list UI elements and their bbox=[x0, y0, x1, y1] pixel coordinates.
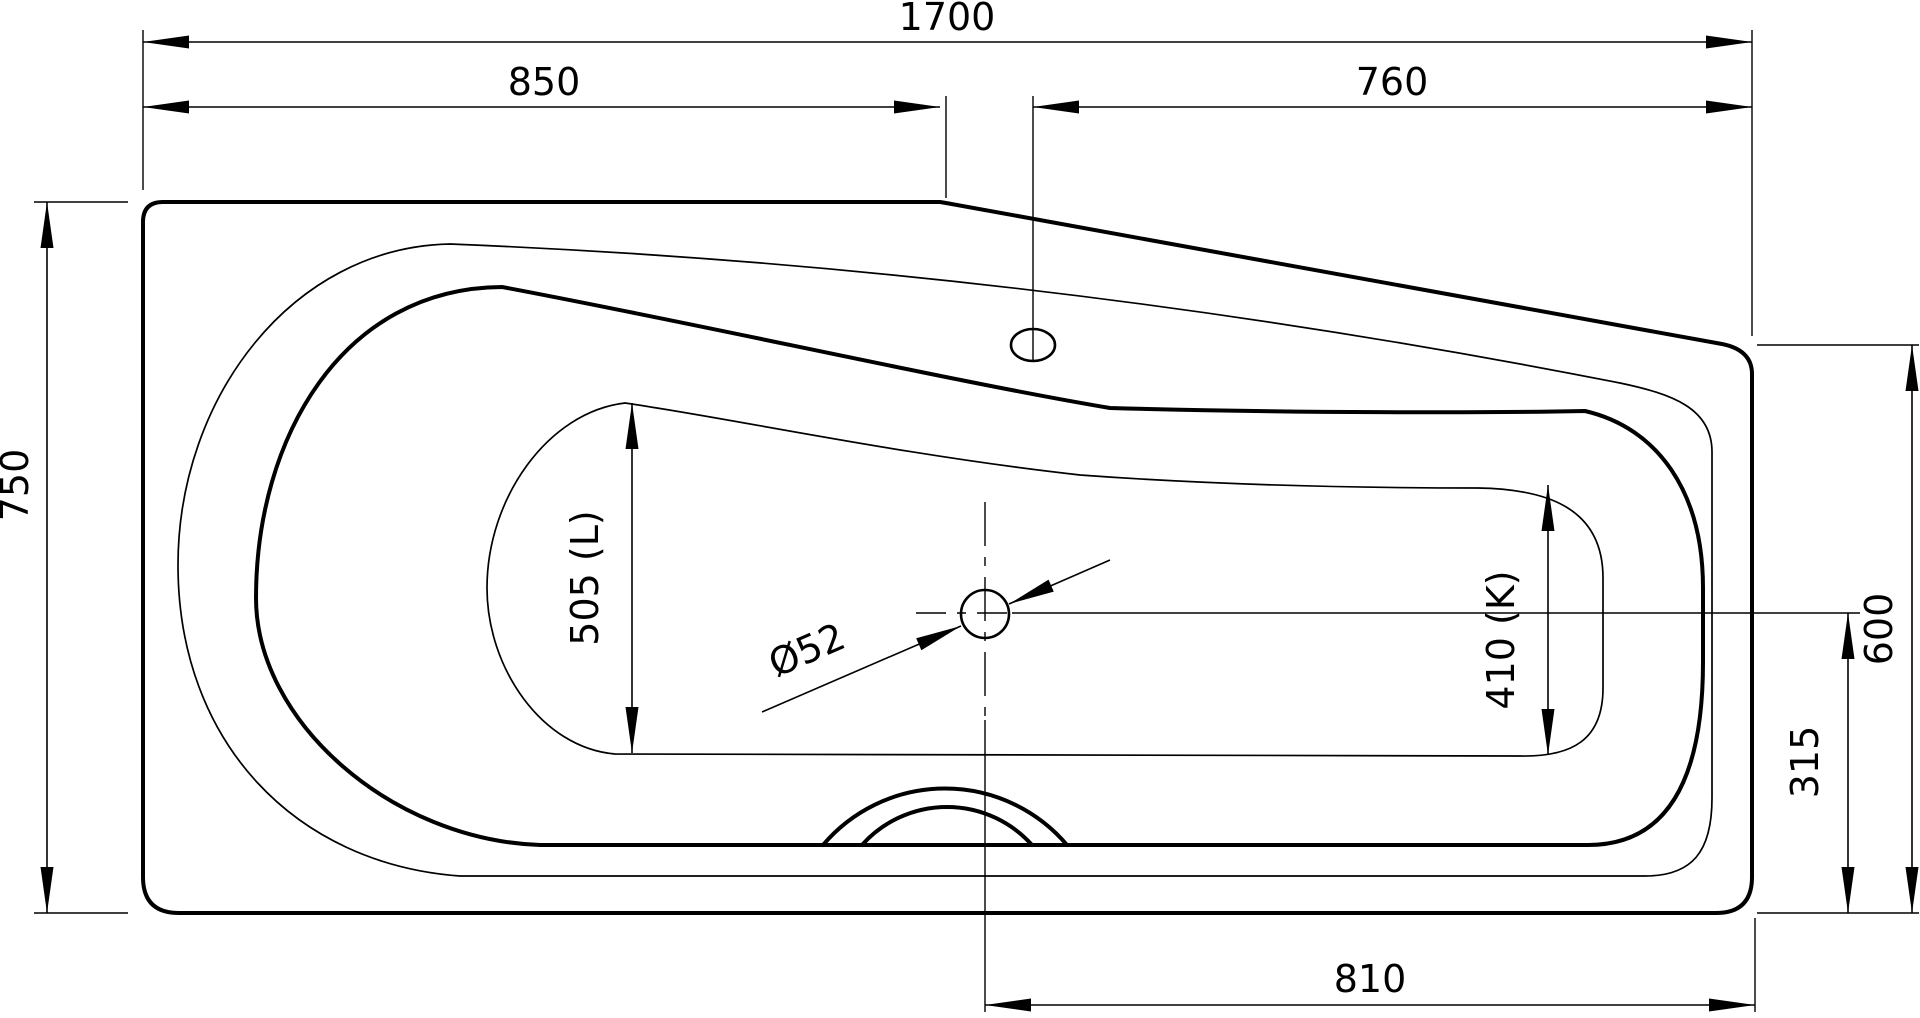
dim-label-410: 410 (K) bbox=[1479, 570, 1523, 709]
dim-label-810: 810 bbox=[1334, 957, 1407, 1001]
dim-label-1700: 1700 bbox=[899, 0, 996, 39]
dim-label-315: 315 bbox=[1783, 726, 1827, 799]
bathtub-technical-drawing-page: 1700 850 760 750 505 (L) 410 (K) 600 315… bbox=[0, 0, 1920, 1018]
bathtub-technical-drawing: 1700 850 760 750 505 (L) 410 (K) 600 315… bbox=[0, 0, 1920, 1018]
dim-label-600: 600 bbox=[1857, 593, 1901, 666]
dim-label-505: 505 (L) bbox=[563, 510, 607, 645]
drawing-background bbox=[0, 0, 1920, 1018]
dim-label-750: 750 bbox=[0, 449, 37, 522]
dim-label-850: 850 bbox=[508, 60, 581, 104]
dim-label-760: 760 bbox=[1356, 60, 1429, 104]
